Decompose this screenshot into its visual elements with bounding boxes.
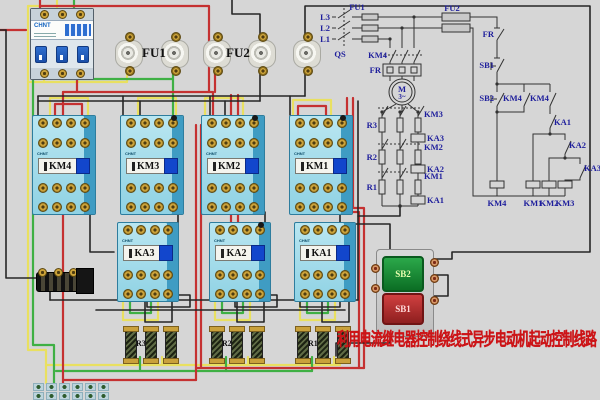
resistor-label: R3 (136, 339, 146, 348)
mount-hole (258, 222, 264, 228)
contactor-indicator (76, 158, 90, 174)
label-r1-schem: R1 (367, 182, 377, 192)
resistor-label: R2 (222, 339, 232, 348)
relay-label: KA3 (123, 245, 161, 261)
label-r2-schem: R2 (367, 152, 377, 162)
terminal-cell (59, 392, 70, 400)
resistor-coil (145, 330, 157, 360)
terminal-screw (40, 69, 49, 78)
relay-label: KA1 (300, 245, 338, 261)
resistor-bank-r3: R3 (125, 330, 177, 360)
fu1-label: FU1 (142, 45, 166, 61)
fuse-holder (115, 40, 143, 68)
contactor-indicator (245, 158, 259, 174)
terminal-screw (76, 69, 85, 78)
schematic-labels: L3 L2 L1 QS FU1 FU2 KM4 FR M 3~ KM3 R3 K… (320, 2, 600, 208)
contactor-km1: CHNT KM1 (289, 115, 353, 215)
contactor-brand: CHNT (122, 238, 133, 243)
mount-hole (340, 115, 346, 121)
resistor-label: R1 (308, 339, 318, 348)
label-fu2-schem: FU2 (444, 3, 460, 13)
terminal-cell (72, 392, 83, 400)
label-fu1-schem: FU1 (349, 2, 365, 12)
fuse-holder (248, 40, 276, 68)
label-km4-aux: KM4 (530, 93, 550, 103)
resistor-coil (165, 330, 177, 360)
label-coil-km3: KM3 (556, 198, 575, 208)
label-km3-rotor: KM3 (424, 109, 443, 119)
resistor-coil (231, 330, 243, 360)
terminal-screw (58, 69, 67, 78)
label-fr-ctrl: FR (483, 29, 495, 39)
label-sb1-schem: SB1 (479, 60, 494, 70)
mount-hole (252, 115, 258, 121)
relay-ka1: CHNT KA1 (294, 222, 356, 302)
schematic (332, 8, 586, 208)
terminal-cell (46, 383, 57, 391)
terminal-screw (54, 268, 63, 277)
terminal-screw (58, 10, 67, 19)
contactor-brand: CHNT (37, 151, 48, 156)
label-km1-rotor: KM1 (424, 171, 443, 181)
terminal-strip (33, 383, 109, 400)
resistor-coil (251, 330, 263, 360)
button-station: SB2 SB1 (376, 249, 434, 337)
contactor-km3: CHNT KM3 (120, 115, 184, 215)
terminal-cell (85, 383, 96, 391)
terminal-cell (98, 383, 109, 391)
contactor-brand: CHNT (294, 151, 305, 156)
fuse-holder (293, 40, 321, 68)
fu2-label: FU2 (226, 45, 250, 61)
terminal-cell (59, 383, 70, 391)
resistor-coil (317, 330, 329, 360)
terminal-cell (33, 392, 44, 400)
circuit-breaker: CHNT (30, 8, 94, 80)
label-r3-schem: R3 (367, 120, 377, 130)
contactor-label: KM4 (38, 158, 77, 174)
relay-indicator (251, 245, 265, 261)
relay-label: KA2 (215, 245, 253, 261)
terminal-cell (98, 392, 109, 400)
button-terminal (430, 274, 439, 283)
breaker-toggle-1[interactable] (35, 46, 47, 63)
stop-button-sb1[interactable]: SB1 (382, 293, 424, 325)
relay-indicator (336, 245, 350, 261)
contactor-km2: CHNT KM2 (201, 115, 265, 215)
breaker-brand: CHNT (34, 23, 51, 29)
terminal-cell (85, 392, 96, 400)
relay-indicator (159, 245, 173, 261)
relay-ka3: CHNT KA3 (117, 222, 179, 302)
breaker-rating-text (34, 31, 56, 37)
label-sb2-schem: SB2 (479, 93, 494, 103)
label-fr-main: FR (370, 65, 382, 75)
label-motor-phase: 3~ (398, 93, 406, 101)
label-km4-selfhold: KM4 (503, 93, 523, 103)
label-ka3-ctrl: KA3 (584, 163, 600, 173)
contactor-label: KM1 (295, 158, 334, 174)
contactor-brand: CHNT (125, 151, 136, 156)
label-coil-km4: KM4 (488, 198, 508, 208)
contactor-indicator (164, 158, 178, 174)
terminal-cell (46, 392, 57, 400)
terminal-screw (76, 10, 85, 19)
breaker-toggle-2[interactable] (56, 46, 68, 63)
fr-terminals (38, 268, 78, 277)
label-l2: L2 (320, 23, 330, 33)
breaker-bottom-terminals (31, 68, 93, 79)
start-button-sb2[interactable]: SB2 (382, 256, 424, 292)
breaker-toggle-3[interactable] (77, 46, 89, 63)
fr-contact-block (76, 268, 94, 294)
terminal-screw (38, 268, 47, 277)
label-km2-rotor: KM2 (424, 142, 443, 152)
resistor-bank-r2: R2 (211, 330, 263, 360)
contactor-km4: CHNT KM4 (32, 115, 96, 215)
label-ka1-ctrl: KA1 (554, 117, 571, 127)
contactor-indicator (333, 158, 347, 174)
label-l3: L3 (320, 12, 330, 22)
terminal-screw (40, 10, 49, 19)
contactor-brand: CHNT (214, 238, 225, 243)
thermal-relay-fr (36, 264, 94, 298)
contactor-label: KM3 (126, 158, 165, 174)
breaker-toggles (31, 40, 93, 68)
mount-hole (171, 115, 177, 121)
contactor-brand: CHNT (299, 238, 310, 243)
breaker-panel: CHNT (31, 20, 93, 40)
button-terminal (430, 296, 439, 305)
diagram-title: 利用电流继电器控制绕线式异步电动机起动控制线路 (337, 326, 596, 352)
button-terminal (371, 284, 380, 293)
button-terminal (430, 258, 439, 267)
button-terminal (371, 264, 380, 273)
breaker-marking (65, 24, 91, 36)
label-l1: L1 (320, 34, 330, 44)
terminal-cell (33, 383, 44, 391)
contactor-brand: CHNT (206, 151, 217, 156)
relay-ka2: CHNT KA2 (209, 222, 271, 302)
label-ka2-ctrl: KA2 (569, 140, 586, 150)
label-ka1-schem: KA1 (427, 195, 444, 205)
label-qs: QS (334, 49, 346, 59)
wiring-diagram-stage: L3 L2 L1 QS FU1 FU2 KM4 FR M 3~ KM3 R3 K… (0, 0, 600, 400)
breaker-top-terminals (31, 9, 93, 20)
contactor-label: KM2 (207, 158, 246, 174)
terminal-cell (72, 383, 83, 391)
label-km4-main: KM4 (368, 50, 388, 60)
